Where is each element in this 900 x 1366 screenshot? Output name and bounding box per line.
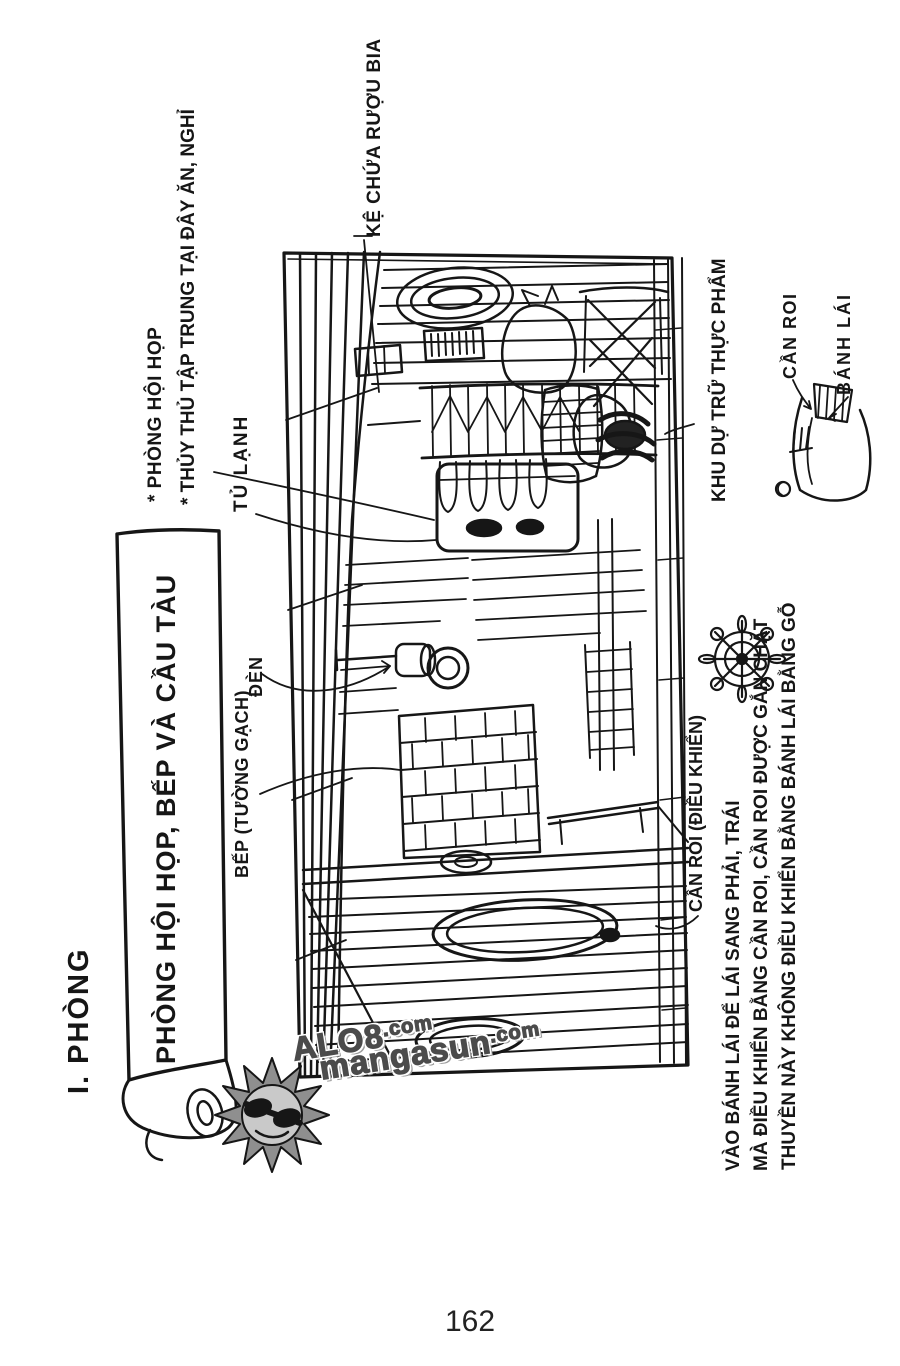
- label-brick-stove: BẾP (TƯỜNG GẠCH): [233, 690, 253, 878]
- caption-line-1: THUYỀN NÀY KHÔNG ĐIỀU KHIỂN BẰNG BÁNH LÁ…: [780, 602, 801, 1170]
- meeting-room-panel: [284, 252, 688, 1077]
- brick-stove-sketch: [399, 705, 540, 873]
- note-crew-gather: * THỦY THỦ TẬP TRUNG TẠI ĐÂY ĂN, NGHỈ: [179, 109, 200, 505]
- label-fridge: TỦ LẠNH: [232, 415, 253, 512]
- section-title: I. PHÒNG: [64, 947, 96, 1094]
- note-meeting-room: * PHÒNG HỘI HỌP: [146, 327, 167, 502]
- label-food-storage: KHU DỰ TRỮ THỰC PHẨM: [710, 258, 731, 502]
- lamp-sketch: [336, 644, 468, 688]
- caption-line-2: MÀ ĐIỀU KHIỂN BẰNG CẦN ROI, CẦN ROI ĐƯỢC…: [752, 619, 773, 1171]
- label-tiller-control: CẦN ROI (ĐIỀU KHIỂN): [687, 715, 707, 912]
- banner-title: PHÒNG HỘI HỌP, BẾP VÀ CẦU TÀU: [152, 574, 182, 1064]
- fridge-sketch: [437, 464, 578, 551]
- caption-line-3: VÀO BÁNH LÁI ĐỂ LÁI SANG PHẢI, TRÁI: [724, 800, 745, 1171]
- page-number: 162: [410, 1305, 530, 1339]
- label-rudder: BÁNH LÁI: [835, 293, 855, 395]
- stern-rudder-sketch: [776, 384, 870, 501]
- manga-page: I. PHÒNG PHÒNG HỘI HỌP, BẾP VÀ CẦU TÀU *…: [0, 0, 900, 1366]
- label-beer-shelf: KỆ CHỨA RƯỢU BIA: [365, 38, 386, 237]
- label-tiller: CẦN ROI: [781, 293, 801, 380]
